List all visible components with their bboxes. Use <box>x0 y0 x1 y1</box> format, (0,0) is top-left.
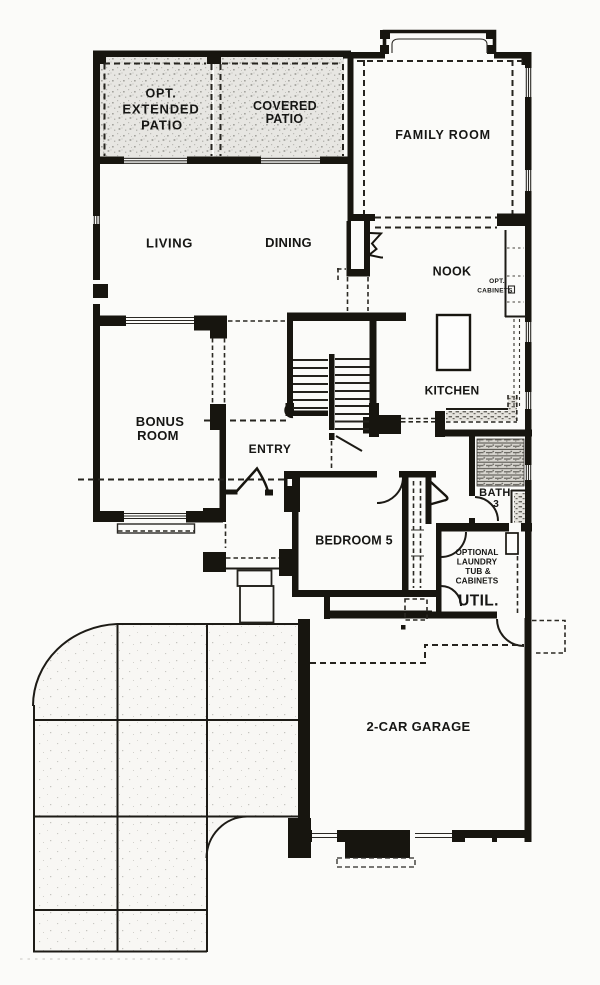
svg-text:BEDROOM 5: BEDROOM 5 <box>315 534 393 548</box>
svg-text:DINING: DINING <box>265 235 312 250</box>
svg-text:OPT.: OPT. <box>489 278 505 285</box>
svg-text:PATIO: PATIO <box>141 118 183 133</box>
svg-text:NOOK: NOOK <box>433 265 472 279</box>
svg-text:CABINETS: CABINETS <box>456 577 499 586</box>
svg-text:FAMILY ROOM: FAMILY ROOM <box>395 128 491 142</box>
svg-text:UTIL.: UTIL. <box>458 593 499 610</box>
svg-text:OPTIONAL: OPTIONAL <box>455 548 498 557</box>
svg-text:COVERED: COVERED <box>253 99 317 113</box>
svg-text:KITCHEN: KITCHEN <box>425 384 480 398</box>
svg-text:2-CAR GARAGE: 2-CAR GARAGE <box>367 719 471 734</box>
svg-text:LAUNDRY: LAUNDRY <box>457 558 498 567</box>
svg-text:ROOM: ROOM <box>137 428 179 443</box>
svg-text:PATIO: PATIO <box>266 112 304 126</box>
svg-text:BONUS: BONUS <box>136 414 184 429</box>
svg-text:3: 3 <box>493 499 499 510</box>
svg-text:LIVING: LIVING <box>146 236 193 251</box>
svg-text:ENTRY: ENTRY <box>249 442 292 456</box>
svg-text:OPT.: OPT. <box>146 87 177 101</box>
svg-text:BATH: BATH <box>479 487 511 499</box>
svg-text:TUB &: TUB & <box>465 567 491 576</box>
svg-text:EXTENDED: EXTENDED <box>122 102 199 117</box>
svg-text:CABINETS: CABINETS <box>477 288 513 295</box>
